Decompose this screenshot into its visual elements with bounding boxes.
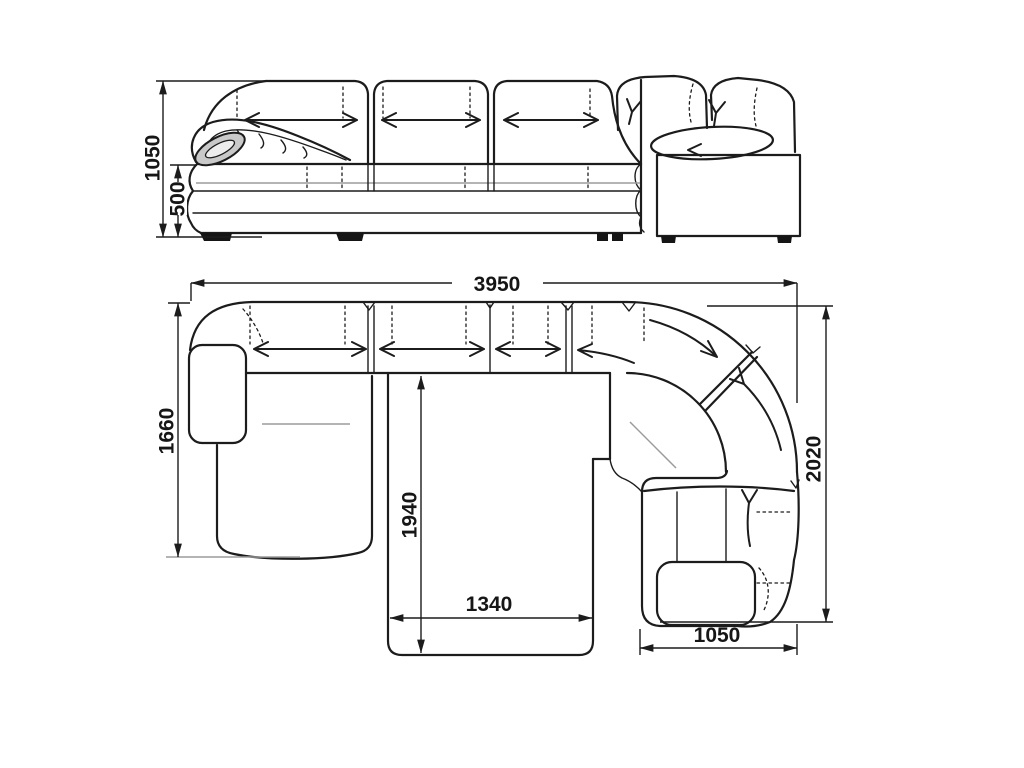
left-armrest-plan bbox=[189, 345, 246, 443]
foot bbox=[597, 233, 608, 241]
sofa-feet bbox=[200, 233, 792, 243]
dim-label-right-width: 1050 bbox=[694, 624, 741, 647]
seat-corner-connector bbox=[610, 459, 642, 492]
plan-seams-and-marks bbox=[243, 302, 799, 612]
pleat-dotted-line bbox=[237, 87, 590, 118]
plan-dotted-pleats bbox=[250, 306, 644, 344]
upholstery-detail-marks bbox=[237, 84, 757, 191]
right-armrest-plan bbox=[657, 562, 755, 625]
pleat-mark-plan-2 bbox=[380, 342, 484, 356]
right-section-pleat-fork bbox=[742, 490, 757, 546]
foot bbox=[336, 233, 364, 241]
pleat-mark-plan-1 bbox=[254, 342, 366, 356]
corner-outer-arc bbox=[627, 302, 797, 472]
corner-back-cushion-right bbox=[711, 78, 795, 152]
dim-label-right-depth: 2020 bbox=[802, 436, 825, 483]
dim-label-bed-length: 1940 bbox=[398, 492, 421, 539]
plan-view: 3950 1660 1940 1340 1050 2020 bbox=[155, 273, 833, 655]
piping-notches bbox=[363, 302, 799, 488]
foot bbox=[777, 236, 792, 243]
armrest-corner-dashed bbox=[243, 309, 263, 343]
pleat-mark-plan-3 bbox=[496, 342, 560, 356]
pleat-mark-cushion-1 bbox=[245, 113, 357, 127]
pleat-mark-cushion-3 bbox=[504, 113, 598, 127]
apron-seam-line bbox=[368, 164, 494, 191]
sofa-dimension-drawing: 1050 500 bbox=[0, 0, 1024, 768]
chaise-outline bbox=[217, 376, 372, 559]
corner-seat-diagonal bbox=[630, 422, 676, 468]
corner-inner-arc bbox=[627, 373, 726, 472]
corner-side-panel bbox=[657, 155, 800, 236]
right-section-seams bbox=[677, 489, 726, 562]
corner-armrest-cushion bbox=[650, 124, 774, 162]
corner-section-divider bbox=[644, 487, 794, 492]
corner-pleat-upper bbox=[650, 320, 717, 357]
foot bbox=[661, 236, 676, 243]
corner-pleat-lower bbox=[730, 368, 781, 450]
corner-bumps bbox=[635, 164, 644, 232]
dim-label-seat-height: 500 bbox=[166, 181, 189, 216]
apron-dotted-line bbox=[307, 167, 588, 189]
dim-label-total-height: 1050 bbox=[141, 135, 164, 182]
pleat-mark-cushion-2 bbox=[382, 113, 480, 127]
dim-label-total-width: 3950 bbox=[474, 273, 521, 296]
technical-drawing-page: 1050 500 bbox=[0, 0, 1024, 768]
pleat-fork-corner-left bbox=[627, 99, 641, 124]
dim-label-left-depth: 1660 bbox=[155, 408, 178, 455]
back-cushion-3 bbox=[494, 81, 641, 164]
dim-label-bed-width: 1340 bbox=[466, 593, 513, 616]
corner-wedge-seam bbox=[700, 352, 757, 410]
right-section-outline bbox=[642, 471, 799, 627]
foot bbox=[612, 233, 623, 241]
pleat-mark-plan-4 bbox=[578, 344, 634, 363]
back-cushion-2 bbox=[374, 81, 488, 164]
back-cushion-seams bbox=[368, 305, 572, 373]
front-elevation-view: 1050 500 bbox=[141, 76, 800, 243]
